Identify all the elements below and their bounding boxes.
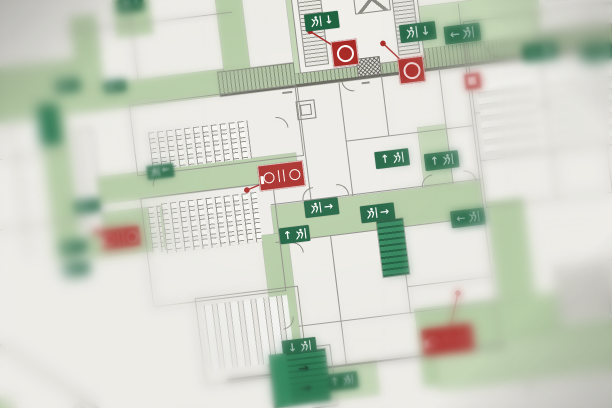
exit-sign-top-left-edge: ↓ [117,0,144,13]
floor-plan: ↓↓←↓←←→→↑↑↑↓↑←←↑↑↓←←→→ [0,0,612,408]
fire-extinguisher-top-b [397,56,426,85]
running-man-icon [539,44,552,57]
divider-bars-icon [278,169,285,182]
arrow-down-icon: ↓ [528,46,538,58]
running-man-icon [391,151,404,164]
arrow-left-icon: ← [117,81,125,90]
running-man-icon [150,167,161,178]
arrow-right-icon: → [379,205,389,217]
arrow-up-icon: ↑ [78,263,87,273]
exit-sign-top-far-right: ↓ [522,41,558,62]
exit-sign-right-edge: ← [581,42,612,62]
exit-sign-center-up-a: ↑ [374,148,410,169]
arrow-left-icon: ← [456,212,466,224]
fire-hose-group-left [100,224,142,251]
running-man-icon [365,206,378,219]
arrow-down-icon: ↓ [323,14,333,26]
running-man-icon [461,26,476,41]
stair-direction-arrow-icon: → [297,362,309,376]
stairwell-bottom-center: →→ [269,349,331,407]
exit-sign-top-center: ↓ [399,21,437,43]
stair-direction-arrow-icon: → [300,382,312,396]
running-man-icon [341,374,354,387]
arrow-down-icon: ↓ [132,0,141,9]
stair-landing [269,354,292,408]
arrow-right-icon: → [323,200,333,212]
running-man-icon [76,201,87,212]
exit-sign-left-a: ← [73,198,99,214]
evacuation-plan-photo: ↓↓←↓←←→→↑↑↑↓↑←←↑↑↓←←→→ [0,0,612,408]
exit-sign-center-east: ← [450,207,486,228]
extinguisher-ring-icon [126,230,138,242]
fire-hose-group-bottom-right [420,323,475,357]
extinguisher-ring-icon [288,168,300,180]
hose-reel-icon [262,171,274,183]
running-man-icon [467,210,480,223]
extinguisher-ring-icon [402,61,421,80]
exit-sign-center-up-b: ↑ [424,150,460,171]
running-man-icon [293,227,306,240]
arrow-up-icon: ↑ [282,229,292,241]
divider-bars-icon [117,232,124,245]
stairwell-center-right [377,218,410,277]
running-man-icon [405,25,420,40]
exit-sign-lower-center: ↑ [279,225,311,245]
exit-sign-left-b: ↑ [60,239,86,255]
exit-sign-top-right: ← [443,23,481,45]
arrow-left-icon: ← [585,47,595,59]
exit-sign-mid-left: ← [146,163,175,180]
safety-sign-layer: ↓↓←↓←←→→↑↑↑↓↑←←↑↑↓←←→→ [0,0,612,408]
arrow-left-icon: ← [88,200,97,210]
call-point-icon [468,77,477,86]
extinguisher-ring-icon [335,44,354,63]
arrow-left-icon: ← [449,28,460,41]
extinguisher-ring-icon [456,332,468,344]
arrow-up-icon: ↑ [429,155,439,167]
hose-reel-icon [103,233,115,245]
running-man-icon [120,0,131,11]
fire-call-point-right [463,71,482,90]
exit-sign-band-left-a: ← [55,77,80,93]
hose-reel-icon [427,335,439,347]
running-man-icon [63,242,74,253]
exit-sign-center-right-a: → [304,197,340,218]
fire-hose-group-center [257,160,306,191]
running-man-icon [66,264,77,275]
running-man-icon [106,82,116,92]
arrow-left-icon: ← [69,79,78,89]
fire-extinguisher-top-a [330,39,359,68]
exit-sign-top-stairs: ↓ [304,10,340,31]
running-man-icon [597,45,610,58]
stairwell-left [37,104,62,146]
arrow-up-icon: ↑ [380,153,390,165]
arrow-up-icon: ↑ [75,241,84,251]
divider-bars-icon [444,333,451,346]
exit-sign-left-c: ↑ [63,261,89,277]
exit-sign-band-left-b: ← [104,79,127,94]
arrow-up-icon: ↑ [330,375,340,387]
running-man-icon [309,201,322,214]
running-man-icon [309,15,322,28]
running-man-icon [57,80,68,91]
running-man-icon [440,153,453,166]
exit-sign-bottom-center: ↑ [325,371,359,392]
arrow-down-icon: ↓ [420,24,431,37]
arrow-left-icon: ← [162,166,171,176]
